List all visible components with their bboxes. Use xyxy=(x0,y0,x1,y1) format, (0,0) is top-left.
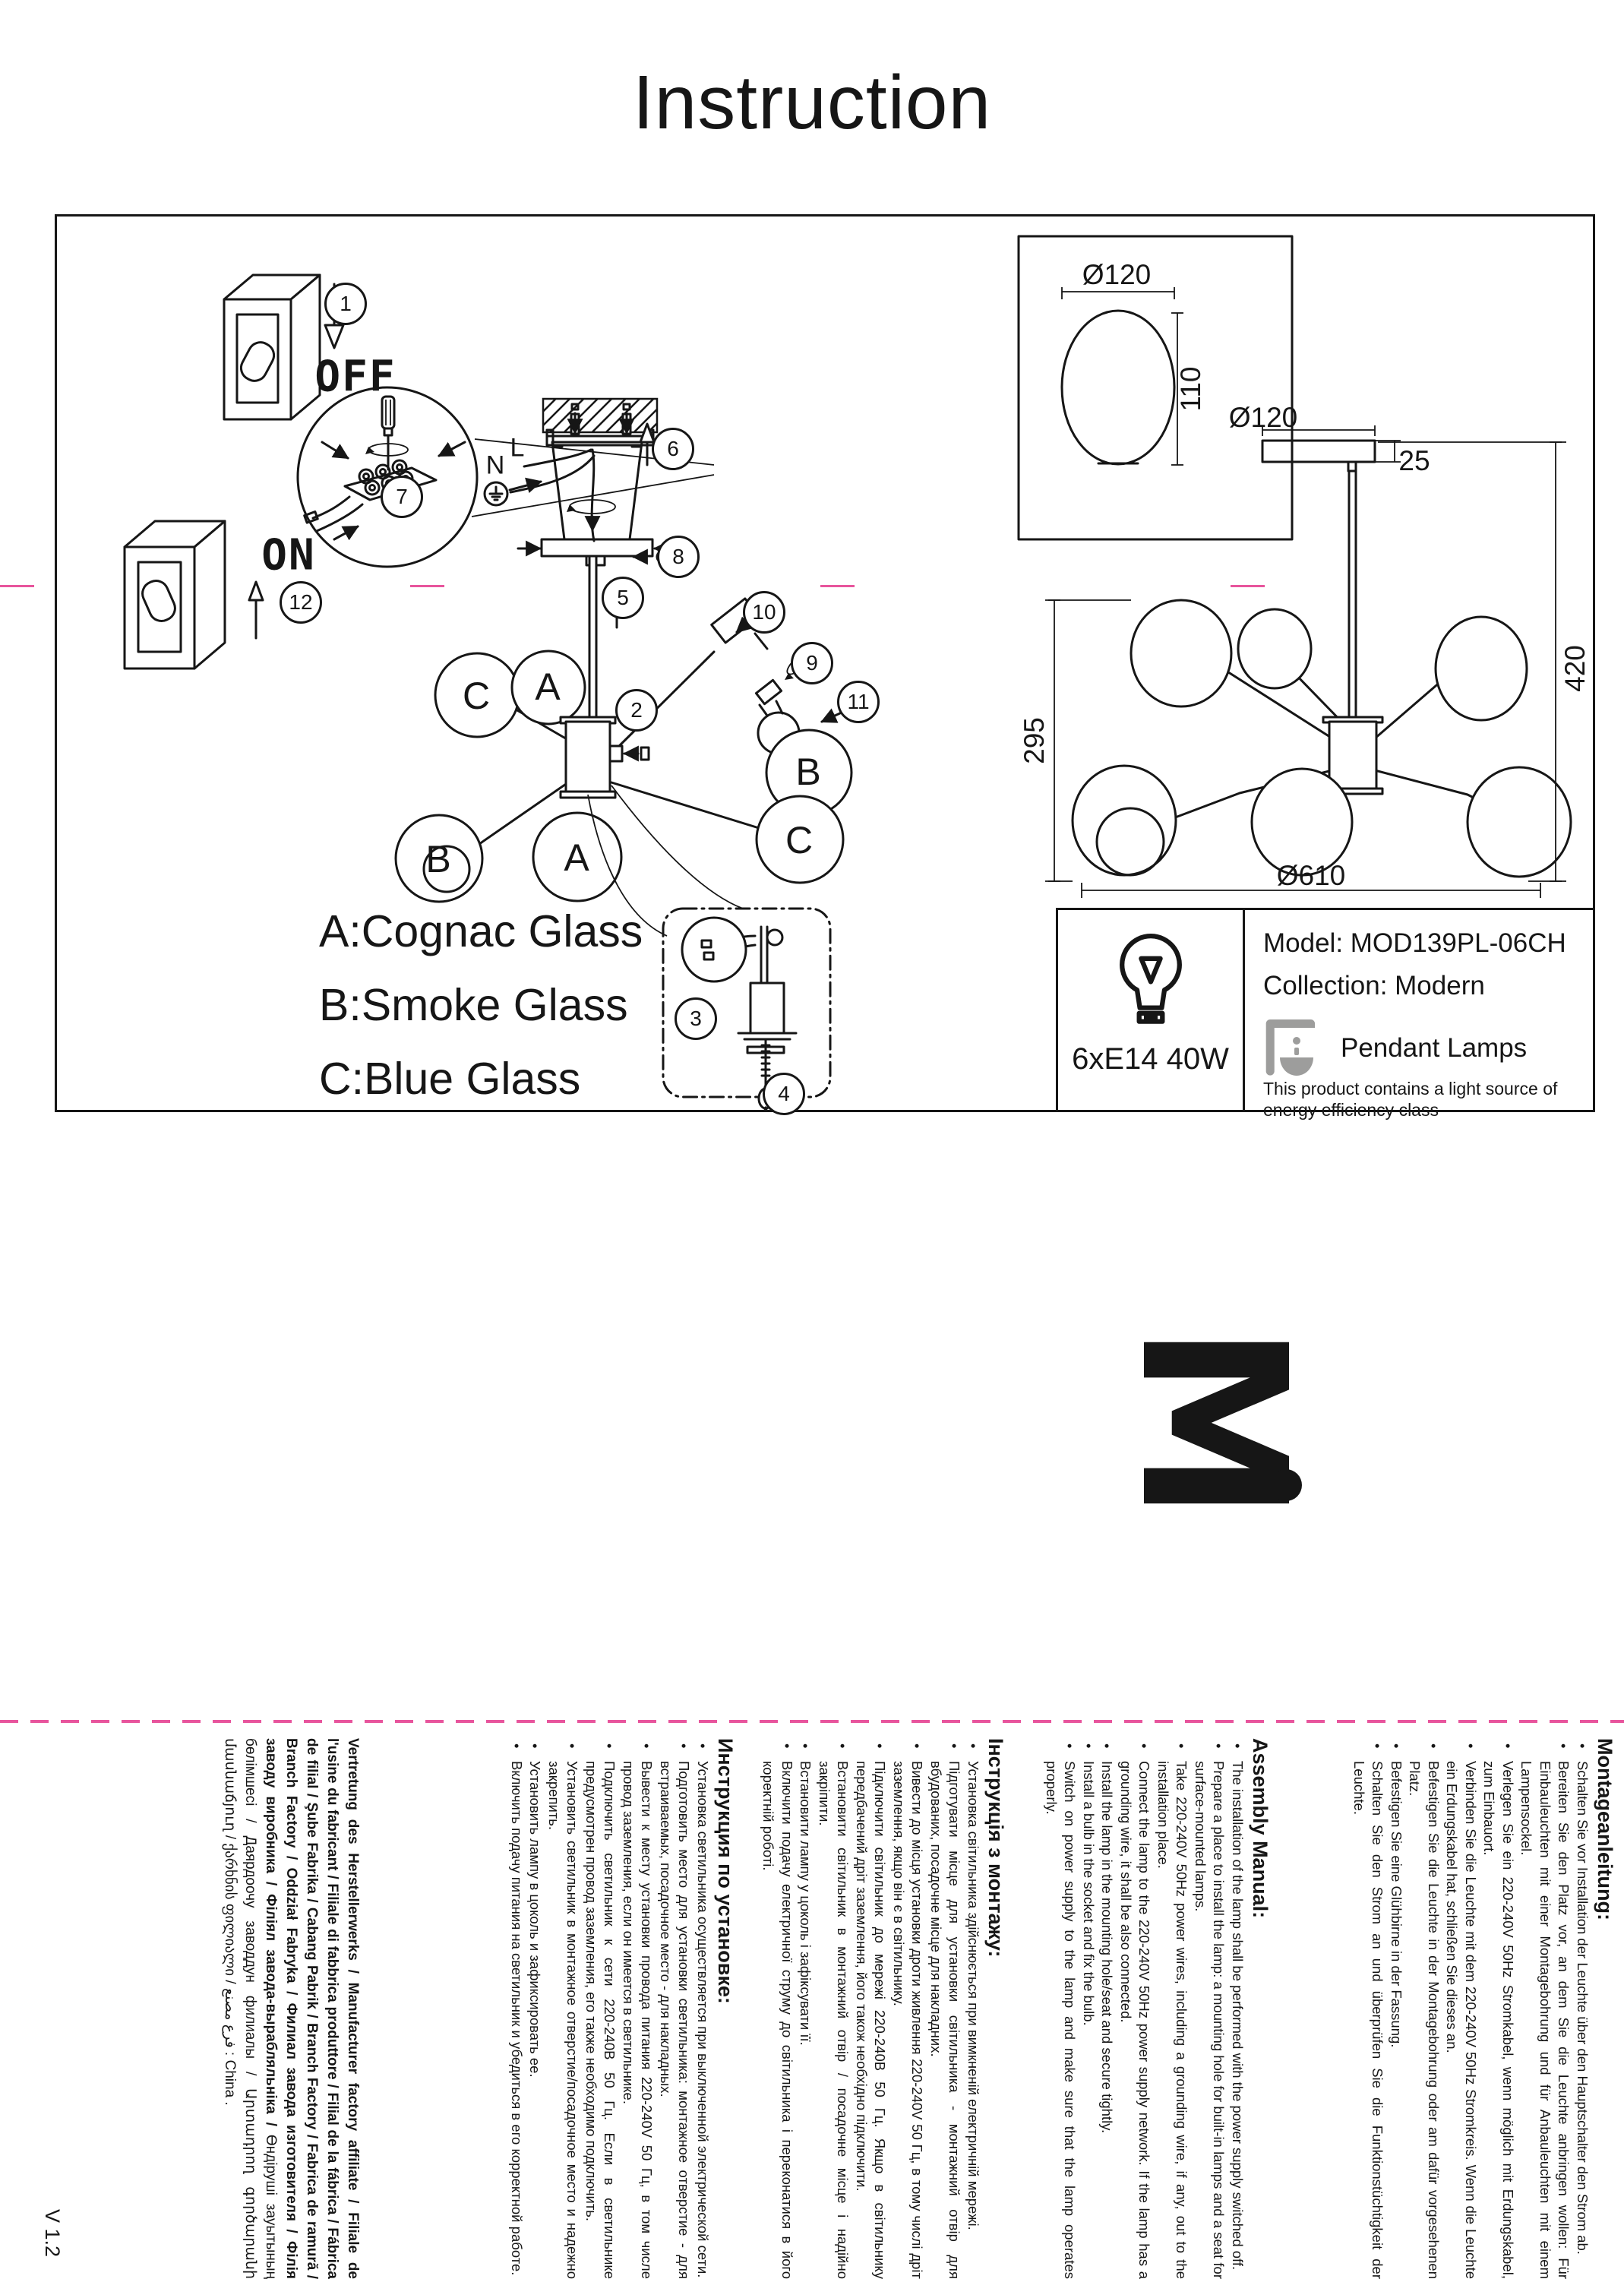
shade-label-a1: A xyxy=(535,665,560,709)
instruction-sheet: Instruction xyxy=(0,0,1624,2279)
energy-note: This product contains a light source of … xyxy=(1263,1079,1582,1121)
instruction-bullet-de: Befestigen Sie die Leuchte in der Montag… xyxy=(1405,1738,1442,2279)
on-switch-drawing xyxy=(125,521,263,669)
wire-neutral-label: N xyxy=(486,451,505,481)
model-spec-cell: Model: MOD139PL-06CH Collection: Modern … xyxy=(1245,910,1593,1110)
model-label: Model: MOD139PL-06CH xyxy=(1263,922,1582,965)
section-german: Montageanleitung: Schalten Sie vor Insta… xyxy=(1350,1738,1617,2279)
collection-label: Collection: Modern xyxy=(1263,965,1582,1007)
instruction-bullet-uk: Встановити лампу у цоколь і зафіксувати … xyxy=(796,1738,815,2279)
category-label: Pendant Lamps xyxy=(1341,1033,1527,1064)
shade-label-b2: B xyxy=(795,750,820,794)
shade-dimension-drawing xyxy=(1019,236,1292,539)
step-4-badge: 4 xyxy=(763,1073,805,1115)
instruction-bullet-de: Schalten Sie den Strom an und überprüfen… xyxy=(1350,1738,1387,2279)
wire-live-label: L xyxy=(510,434,525,463)
legend-line: C:Blue Glass xyxy=(319,1042,643,1116)
instruction-bullet-ru: Установить светильник в монтажное отверс… xyxy=(545,1738,582,2279)
dim-canopy-diameter: Ø120 xyxy=(1229,402,1298,434)
step-11-badge: 11 xyxy=(837,681,880,723)
instruction-bullet-en: The installation of the lamp shall be pe… xyxy=(1228,1738,1247,2279)
instruction-bullet-ru: Подготовить место для установки светильн… xyxy=(656,1738,694,2279)
instruction-bullet-uk: Підготувати місце для установки світильн… xyxy=(927,1738,964,2279)
instruction-bullet-uk: Вивести до місця установки дроти живленн… xyxy=(889,1738,927,2279)
instruction-bullet-ru: Включить подачу питания на светильник и … xyxy=(507,1738,526,2279)
section-english: Assembly Manual: The installation of the… xyxy=(1042,1738,1272,2279)
dim-canopy-height: 25 xyxy=(1398,445,1430,477)
section-english-title: Assembly Manual: xyxy=(1249,1738,1272,2279)
instruction-bullet-ru: Установить лампу в цоколь и зафиксироват… xyxy=(526,1738,545,2279)
section-russian-title: Инструкция по установке: xyxy=(714,1738,737,2279)
instruction-bullet-uk: Установка світильника здійснюється при в… xyxy=(964,1738,983,2279)
step-1-badge: 1 xyxy=(324,283,367,325)
instruction-bullet-uk: Підключити світильник до мережі 220-240В… xyxy=(852,1738,889,2279)
instruction-bullet-de: Bereiten Sie den Platz vor, an dem Sie d… xyxy=(1517,1738,1573,2279)
dim-total-height: 420 xyxy=(1559,645,1591,692)
instruction-bullet-ru: Вывести к месту установки провода питани… xyxy=(619,1738,656,2279)
on-label: ON xyxy=(261,531,315,580)
dim-shade-height: 110 xyxy=(1175,367,1207,412)
shade-label-b1: B xyxy=(425,837,450,881)
version-label: V 1.2 xyxy=(40,2209,64,2257)
instruction-bullet-en: Connect the lamp to the 220-240V 50Hz po… xyxy=(1117,1738,1154,2279)
bulb-icon xyxy=(1110,921,1192,1035)
instruction-bullet-de: Verbinden Sie die Leuchte mit dem 220-24… xyxy=(1442,1738,1480,2279)
cut-mark-line-bottom xyxy=(0,1720,1624,1723)
legend-line: B:Smoke Glass xyxy=(319,969,643,1042)
instruction-bullet-de: Schalten Sie vor Installation der Leucht… xyxy=(1573,1738,1592,2279)
brand-m-icon: M xyxy=(1123,1333,1313,1523)
lamp-dimension-drawing xyxy=(1045,425,1571,898)
shade-label-c2: C xyxy=(785,818,813,862)
section-ukrainian-title: Інструкція з монтажу: xyxy=(984,1738,1007,2279)
step-7-badge: 7 xyxy=(381,476,423,518)
instruction-bullet-en: Take 220-240V 50Hz power wires, includin… xyxy=(1154,1738,1191,2279)
instruction-bullet-en: Switch on power supply to the lamp and m… xyxy=(1042,1738,1079,2279)
step-3-badge: 3 xyxy=(675,997,717,1040)
instruction-bullet-ru: Установка светильника осуществляется при… xyxy=(694,1738,712,2279)
dim-total-diameter: Ø610 xyxy=(1277,860,1346,892)
pendant-lamp-icon xyxy=(1263,1018,1319,1079)
instruction-bullet-en: Install the lamp in the mounting hole/se… xyxy=(1098,1738,1117,2279)
shade-label-c1: C xyxy=(463,674,490,718)
step-6-badge: 6 xyxy=(652,428,694,470)
section-german-title: Montageanleitung: xyxy=(1594,1738,1616,2279)
ground-icon xyxy=(485,482,507,505)
brand-logo: M xyxy=(1123,1333,1313,1523)
legend-line: A:Cognac Glass xyxy=(319,895,643,969)
instruction-bullet-de: Verlegen Sie ein 220-240V 50Hz Stromkabe… xyxy=(1480,1738,1517,2279)
dim-shade-diameter: Ø120 xyxy=(1082,259,1152,291)
instruction-bullet-en: Install a bulb in the socket and fix the… xyxy=(1079,1738,1098,2279)
step-9-badge: 9 xyxy=(791,642,833,684)
section-russian: Инструкция по установке: Установка свети… xyxy=(507,1738,738,2279)
shade-label-a2: A xyxy=(564,836,589,880)
step-12-badge: 12 xyxy=(280,581,322,624)
chandelier-exploded-drawing xyxy=(396,599,851,936)
page-title: Instruction xyxy=(0,59,1624,147)
dim-body-height: 295 xyxy=(1019,717,1051,764)
instruction-bullet-en: Prepare a place to install the lamp: a m… xyxy=(1191,1738,1228,2279)
glass-legend: A:Cognac GlassB:Smoke GlassC:Blue Glass xyxy=(319,895,643,1116)
step-5-badge: 5 xyxy=(602,577,644,619)
instruction-bullet-uk: Встановити світильник в монтажний отвір … xyxy=(815,1738,852,2279)
bulb-spec-cell: 6xE14 40W xyxy=(1058,910,1245,1110)
section-ukrainian: Інструкція з монтажу: Установка світильн… xyxy=(759,1738,1007,2279)
manufacturer-note: Vertretung des Herstellerwerks / Manufac… xyxy=(220,1738,363,2279)
step-8-badge: 8 xyxy=(657,536,700,578)
step-2-badge: 2 xyxy=(615,689,658,732)
spec-box: 6xE14 40W Model: MOD139PL-06CH Collectio… xyxy=(1056,908,1595,1112)
instruction-bullet-ru: Подключить светильник к сети 220-240В 50… xyxy=(582,1738,619,2279)
ceiling-mount-drawing xyxy=(518,399,678,565)
instruction-bullet-de: Befestigen Sie eine Glühbirne in der Fas… xyxy=(1387,1738,1406,2279)
step-10-badge: 10 xyxy=(743,591,785,634)
off-label: OFF xyxy=(314,352,396,402)
terminal-detail-circle xyxy=(298,387,477,567)
instruction-bullet-uk: Включити подачу електричної струму до св… xyxy=(759,1738,796,2279)
bulb-spec-label: 6xE14 40W xyxy=(1072,1042,1229,1076)
